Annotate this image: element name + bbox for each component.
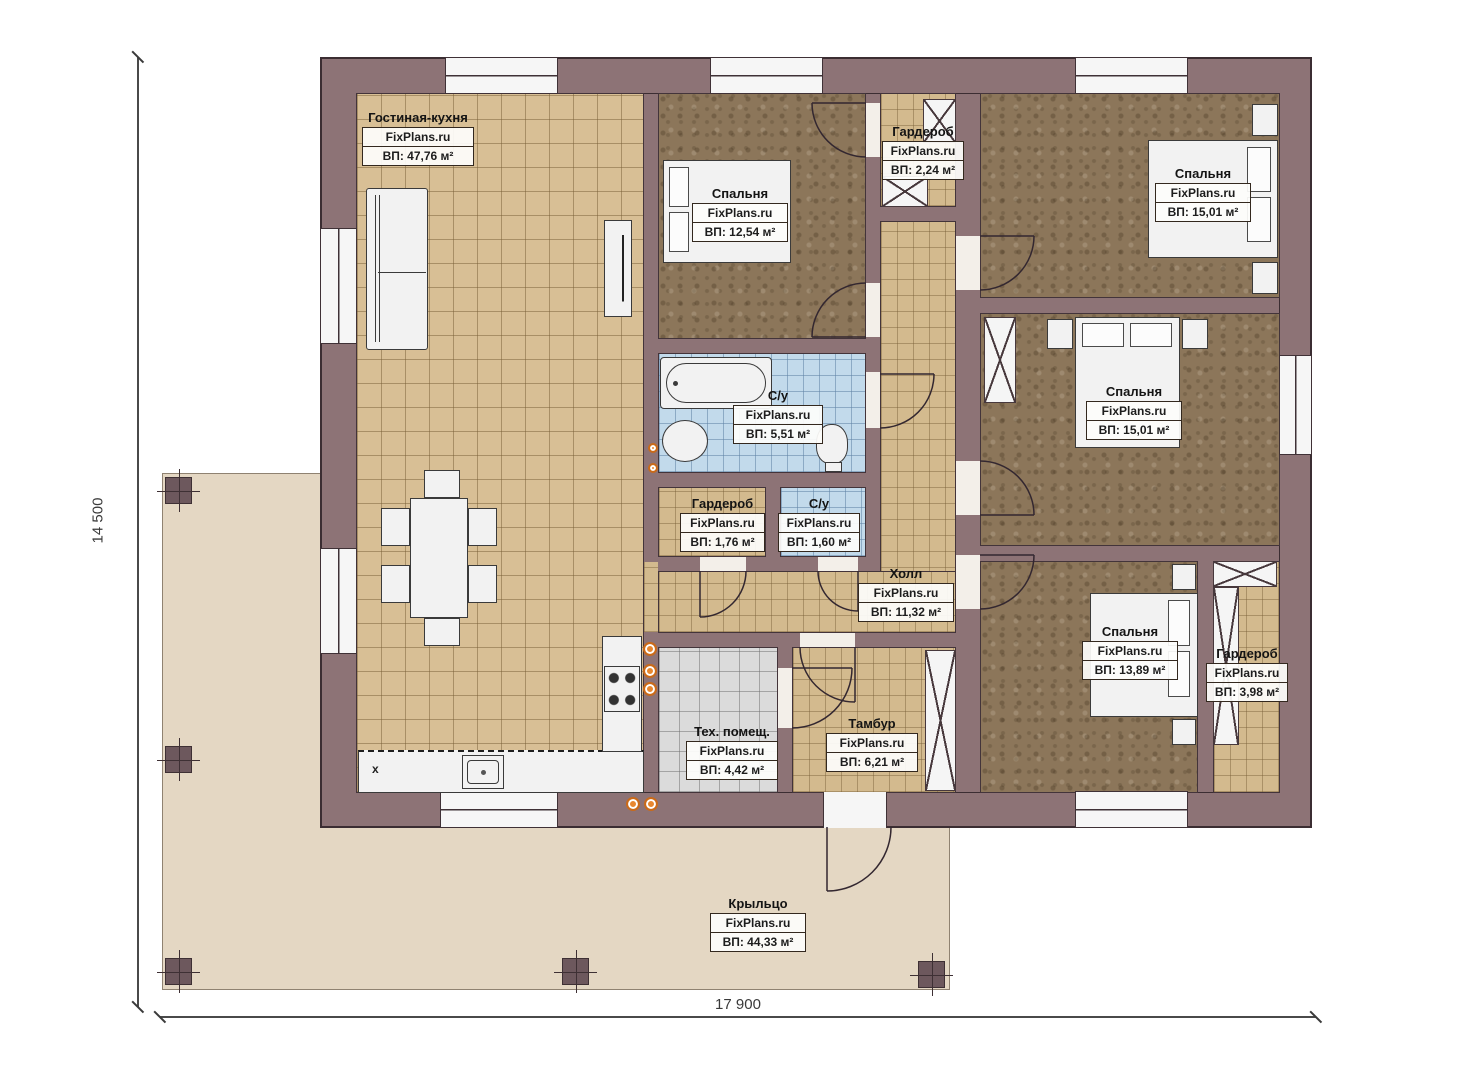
room-watermark: FixPlans.ru xyxy=(1156,184,1250,202)
room-name: Гардероб xyxy=(882,124,964,139)
room-watermark: FixPlans.ru xyxy=(1207,664,1287,682)
door-swing-arc xyxy=(827,827,891,891)
room-name: Спальня xyxy=(1155,166,1251,181)
room-name: Гардероб xyxy=(1206,646,1288,661)
door-swing-arc xyxy=(980,236,1034,290)
room-info-box: FixPlans.ru ВП: 1,76 м² xyxy=(680,513,765,552)
door-swing-arc xyxy=(812,103,866,157)
room-label-bathroom-551: С/у FixPlans.ru ВП: 5,51 м² xyxy=(733,388,823,444)
room-info-box: FixPlans.ru ВП: 4,42 м² xyxy=(686,741,778,780)
room-area: ВП: 1,76 м² xyxy=(681,532,764,551)
floor-plan: 14 500 17 900 xyxy=(0,0,1473,1080)
room-area: ВП: 2,24 м² xyxy=(883,160,963,179)
room-label-bedroom-top-right: Спальня FixPlans.ru ВП: 15,01 м² xyxy=(1155,166,1251,222)
room-watermark: FixPlans.ru xyxy=(693,204,787,222)
room-label-porch: Крыльцо FixPlans.ru ВП: 44,33 м² xyxy=(710,896,806,952)
room-area: ВП: 1,60 м² xyxy=(779,532,859,551)
room-watermark: FixPlans.ru xyxy=(687,742,777,760)
room-label-tambour: Тамбур FixPlans.ru ВП: 6,21 м² xyxy=(826,716,918,772)
room-watermark: FixPlans.ru xyxy=(681,514,764,532)
room-watermark: FixPlans.ru xyxy=(859,584,953,602)
room-info-box: FixPlans.ru ВП: 44,33 м² xyxy=(710,913,806,952)
room-label-bedroom-middle-right: Спальня FixPlans.ru ВП: 15,01 м² xyxy=(1086,384,1182,440)
room-name: Спальня xyxy=(1082,624,1178,639)
room-info-box: FixPlans.ru ВП: 1,60 м² xyxy=(778,513,860,552)
door-swing-arc xyxy=(812,283,866,337)
room-label-bedroom-bottom-right: Спальня FixPlans.ru ВП: 13,89 м² xyxy=(1082,624,1178,680)
room-area: ВП: 6,21 м² xyxy=(827,752,917,771)
door-swing-arc xyxy=(880,374,934,428)
room-area: ВП: 12,54 м² xyxy=(693,222,787,241)
room-info-box: FixPlans.ru ВП: 47,76 м² xyxy=(362,127,474,166)
room-watermark: FixPlans.ru xyxy=(883,142,963,160)
room-label-wardrobe-398: Гардероб FixPlans.ru ВП: 3,98 м² xyxy=(1206,646,1288,702)
room-info-box: FixPlans.ru ВП: 11,32 м² xyxy=(858,583,954,622)
room-watermark: FixPlans.ru xyxy=(363,128,473,146)
room-name: Тамбур xyxy=(826,716,918,731)
room-watermark: FixPlans.ru xyxy=(711,914,805,932)
room-info-box: FixPlans.ru ВП: 6,21 м² xyxy=(826,733,918,772)
room-area: ВП: 15,01 м² xyxy=(1087,420,1181,439)
room-watermark: FixPlans.ru xyxy=(734,406,822,424)
room-name: Гостиная-кухня xyxy=(362,110,474,125)
door-swing-arc xyxy=(980,555,1034,609)
room-info-box: FixPlans.ru ВП: 12,54 м² xyxy=(692,203,788,242)
room-name: Тех. помещ. xyxy=(686,724,778,739)
room-watermark: FixPlans.ru xyxy=(1087,402,1181,420)
room-area: ВП: 13,89 м² xyxy=(1083,660,1177,679)
room-label-tech-room: Тех. помещ. FixPlans.ru ВП: 4,42 м² xyxy=(686,724,778,780)
room-info-box: FixPlans.ru ВП: 5,51 м² xyxy=(733,405,823,444)
room-area: ВП: 44,33 м² xyxy=(711,932,805,951)
room-label-wardrobe-176: Гардероб FixPlans.ru ВП: 1,76 м² xyxy=(680,496,765,552)
room-info-box: FixPlans.ru ВП: 15,01 м² xyxy=(1086,401,1182,440)
room-label-wardrobe-224: Гардероб FixPlans.ru ВП: 2,24 м² xyxy=(882,124,964,180)
room-name: Крыльцо xyxy=(710,896,806,911)
room-name: Гардероб xyxy=(680,496,765,511)
room-watermark: FixPlans.ru xyxy=(779,514,859,532)
room-watermark: FixPlans.ru xyxy=(1083,642,1177,660)
room-name: С/у xyxy=(778,496,860,511)
room-area: ВП: 15,01 м² xyxy=(1156,202,1250,221)
room-name: Спальня xyxy=(692,186,788,201)
room-area: ВП: 5,51 м² xyxy=(734,424,822,443)
room-info-box: FixPlans.ru ВП: 2,24 м² xyxy=(882,141,964,180)
room-area: ВП: 47,76 м² xyxy=(363,146,473,165)
room-label-bedroom-1: Спальня FixPlans.ru ВП: 12,54 м² xyxy=(692,186,788,242)
room-name: С/у xyxy=(733,388,823,403)
room-name: Спальня xyxy=(1086,384,1182,399)
door-swing-arc xyxy=(980,461,1034,515)
room-watermark: FixPlans.ru xyxy=(827,734,917,752)
room-label-hall: Холл FixPlans.ru ВП: 11,32 м² xyxy=(858,566,954,622)
room-area: ВП: 3,98 м² xyxy=(1207,682,1287,701)
room-info-box: FixPlans.ru ВП: 13,89 м² xyxy=(1082,641,1178,680)
door-swing-arc xyxy=(818,571,858,611)
room-info-box: FixPlans.ru ВП: 3,98 м² xyxy=(1206,663,1288,702)
door-swing-arc xyxy=(700,571,746,617)
room-name: Холл xyxy=(858,566,954,581)
room-area: ВП: 4,42 м² xyxy=(687,760,777,779)
room-label-wc-160: С/у FixPlans.ru ВП: 1,60 м² xyxy=(778,496,860,552)
room-info-box: FixPlans.ru ВП: 15,01 м² xyxy=(1155,183,1251,222)
room-label-living-kitchen: Гостиная-кухня FixPlans.ru ВП: 47,76 м² xyxy=(362,110,474,166)
room-area: ВП: 11,32 м² xyxy=(859,602,953,621)
